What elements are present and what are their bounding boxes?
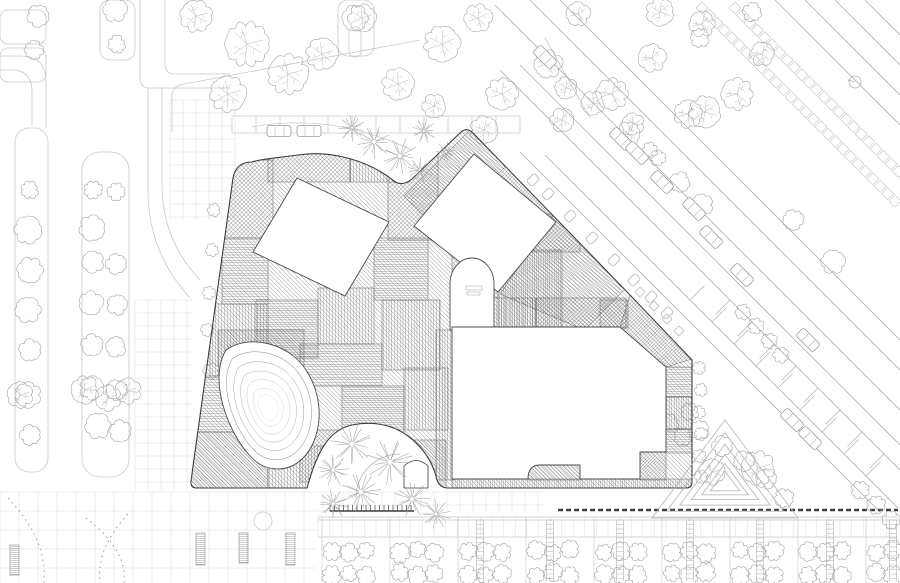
paving-grid <box>170 100 235 220</box>
parked-car <box>625 141 650 166</box>
parked-car <box>730 263 755 288</box>
site-plan <box>0 0 900 583</box>
terrace-table <box>585 231 598 244</box>
dotted-planting-arc <box>86 518 124 583</box>
paver-band <box>729 2 900 177</box>
terrace-paver <box>635 287 645 297</box>
paver-band <box>696 2 900 207</box>
planters <box>10 512 295 575</box>
parked-car <box>798 426 823 451</box>
parked-car <box>780 408 805 433</box>
site-plan-drawing <box>0 0 900 583</box>
parked-car <box>297 126 321 137</box>
paving-grid <box>0 492 330 583</box>
lollipop-tree <box>342 5 369 57</box>
terrace-table <box>660 306 673 319</box>
terrace-table <box>563 209 576 222</box>
entry-arch <box>404 461 428 489</box>
parking-ticks <box>690 286 880 476</box>
main-courtyard <box>452 327 666 479</box>
parked-car <box>699 225 724 250</box>
parked-car <box>796 328 821 353</box>
building-roof <box>190 128 692 498</box>
terrace-table <box>644 290 657 303</box>
terrace-table <box>541 187 554 200</box>
parked-car <box>650 170 675 195</box>
terrace-table <box>526 173 539 186</box>
parked-car <box>682 197 707 222</box>
parked-car <box>267 126 291 137</box>
paving-grid <box>135 300 193 490</box>
arched-courtyard <box>450 258 494 330</box>
survey-marker <box>848 76 861 88</box>
terrace-table <box>627 273 640 286</box>
parking-ticks <box>716 300 884 468</box>
terrace-paver <box>674 326 684 336</box>
terrace-table <box>607 253 620 266</box>
